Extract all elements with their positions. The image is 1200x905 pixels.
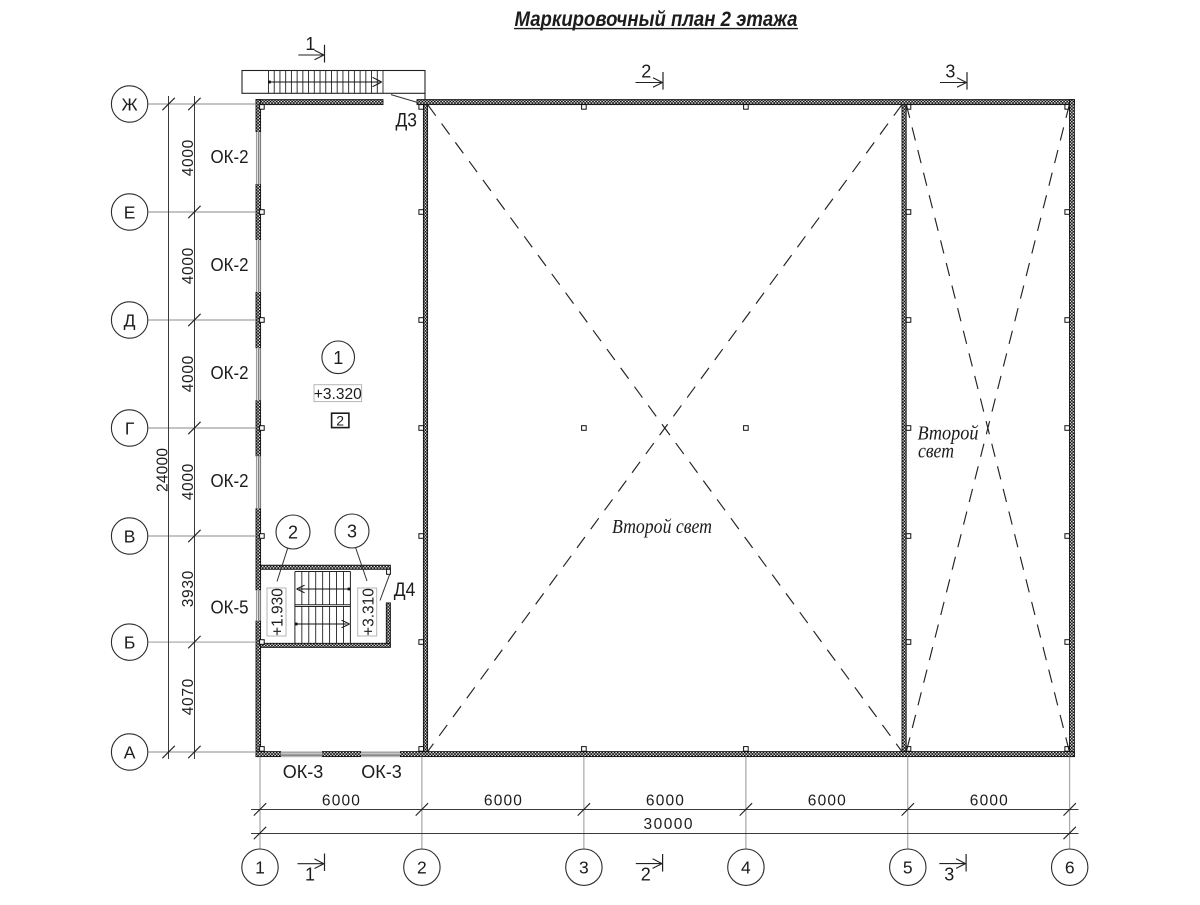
svg-text:Д4: Д4 bbox=[394, 579, 416, 601]
svg-text:5: 5 bbox=[903, 858, 913, 878]
svg-text:4: 4 bbox=[741, 858, 751, 878]
svg-text:4000: 4000 bbox=[180, 355, 197, 392]
svg-text:2: 2 bbox=[417, 858, 427, 878]
svg-text:6000: 6000 bbox=[484, 793, 522, 810]
svg-text:3: 3 bbox=[347, 522, 357, 542]
svg-text:Г: Г bbox=[125, 418, 135, 438]
svg-text:1: 1 bbox=[305, 864, 315, 884]
svg-text:+3.320: +3.320 bbox=[314, 386, 362, 403]
svg-text:Маркировочный план 2 этажа: Маркировочный план 2 этажа bbox=[515, 7, 798, 31]
svg-text:В: В bbox=[124, 526, 136, 546]
svg-text:1: 1 bbox=[305, 34, 315, 54]
svg-text:1: 1 bbox=[255, 858, 265, 878]
svg-text:2: 2 bbox=[641, 62, 651, 82]
svg-text:4000: 4000 bbox=[180, 139, 197, 176]
svg-text:ОК-2: ОК-2 bbox=[211, 147, 249, 167]
svg-text:6000: 6000 bbox=[970, 793, 1008, 810]
svg-text:3: 3 bbox=[945, 62, 955, 82]
svg-text:2: 2 bbox=[336, 413, 344, 429]
svg-text:3930: 3930 bbox=[180, 570, 197, 607]
svg-text:2: 2 bbox=[288, 523, 298, 543]
svg-text:3: 3 bbox=[579, 858, 589, 878]
svg-text:4000: 4000 bbox=[180, 247, 197, 284]
svg-text:30000: 30000 bbox=[644, 816, 693, 833]
svg-text:Е: Е bbox=[124, 202, 136, 222]
svg-text:24000: 24000 bbox=[154, 448, 171, 492]
svg-text:6000: 6000 bbox=[646, 793, 684, 810]
svg-text:+3.310: +3.310 bbox=[360, 588, 377, 636]
svg-text:Второй свет: Второй свет bbox=[612, 516, 712, 538]
svg-text:4070: 4070 bbox=[180, 678, 197, 715]
svg-text:ОК-2: ОК-2 bbox=[211, 255, 249, 275]
svg-text:Д3: Д3 bbox=[396, 109, 418, 131]
svg-text:Д: Д bbox=[124, 310, 136, 330]
svg-text:4000: 4000 bbox=[180, 463, 197, 500]
svg-text:3: 3 bbox=[944, 864, 954, 884]
svg-text:ОК-2: ОК-2 bbox=[211, 471, 249, 491]
svg-text:1: 1 bbox=[333, 348, 343, 368]
svg-text:ОК-3: ОК-3 bbox=[361, 762, 402, 782]
svg-text:6: 6 bbox=[1065, 858, 1075, 878]
svg-text:ОК-5: ОК-5 bbox=[211, 598, 249, 618]
svg-text:ОК-3: ОК-3 bbox=[283, 762, 324, 782]
svg-text:6000: 6000 bbox=[322, 793, 360, 810]
svg-text:6000: 6000 bbox=[808, 793, 846, 810]
svg-text:А: А bbox=[124, 742, 136, 762]
svg-text:+1.930: +1.930 bbox=[270, 588, 287, 636]
svg-text:свет: свет bbox=[918, 441, 954, 463]
svg-text:2: 2 bbox=[641, 864, 651, 884]
svg-text:Б: Б bbox=[124, 633, 135, 653]
svg-text:ОК-2: ОК-2 bbox=[211, 363, 249, 383]
svg-text:Ж: Ж bbox=[122, 94, 138, 114]
